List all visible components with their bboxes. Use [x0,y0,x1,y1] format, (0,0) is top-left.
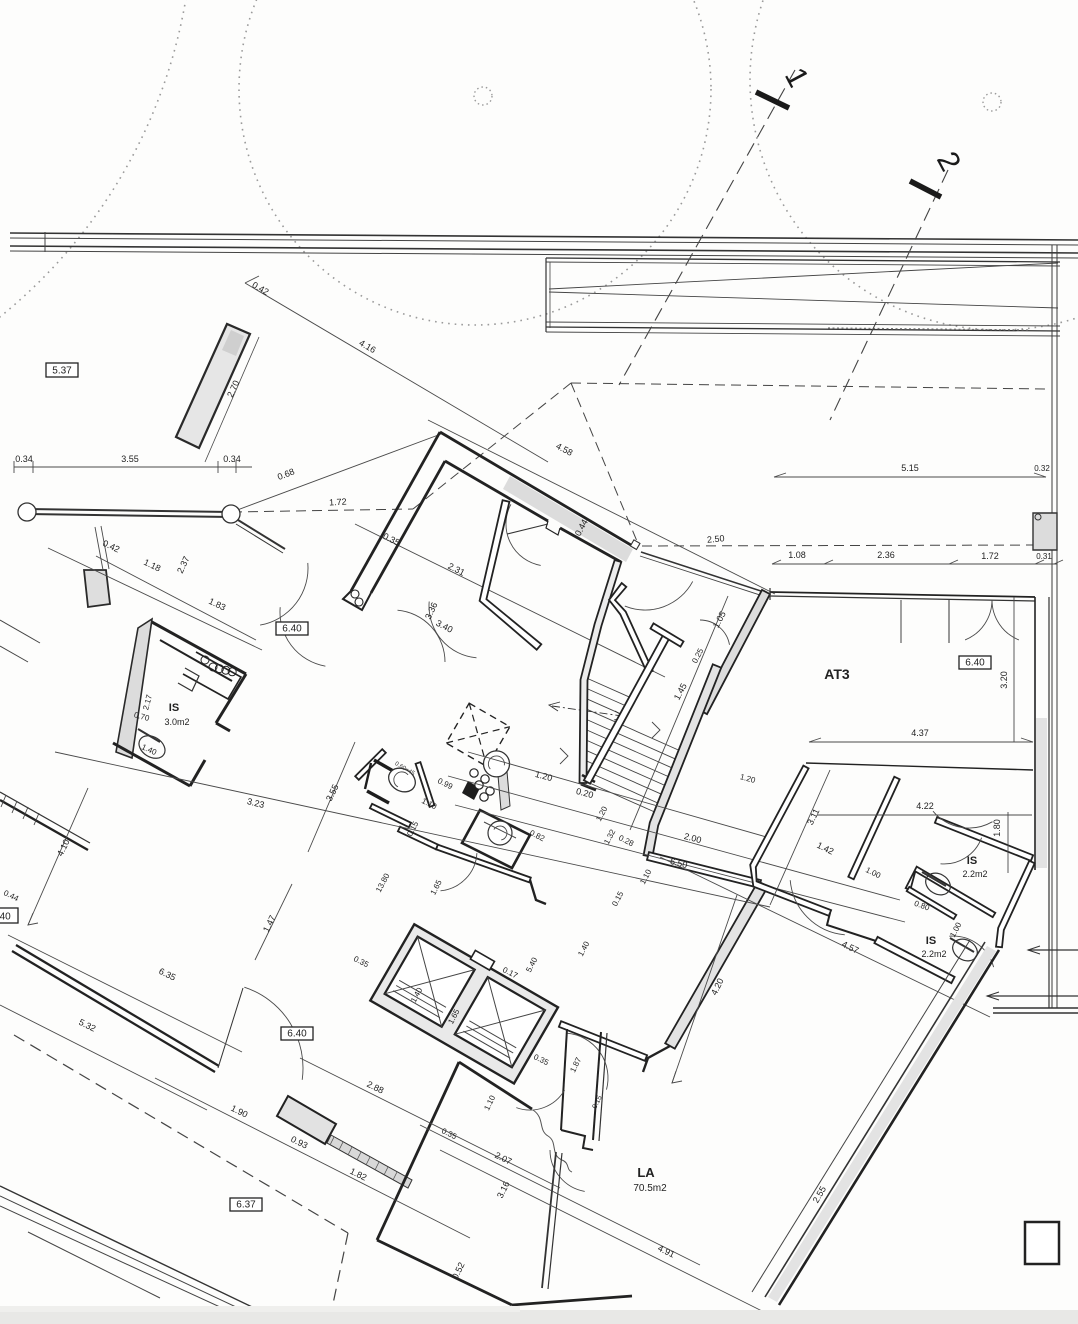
svg-text:6.40: 6.40 [287,1029,307,1040]
svg-text:3.20: 3.20 [999,671,1009,689]
svg-text:0.31: 0.31 [1036,552,1052,561]
svg-text:3.0m2: 3.0m2 [164,717,189,727]
svg-text:1.80: 1.80 [992,819,1002,837]
svg-text:5.15: 5.15 [901,463,919,473]
svg-text:2.36: 2.36 [877,550,895,560]
svg-text:6.37: 6.37 [236,1200,256,1211]
svg-text:1.72: 1.72 [981,551,999,561]
svg-text:2.50: 2.50 [707,533,725,544]
svg-text:0.32: 0.32 [1034,464,1050,473]
svg-text:LA: LA [637,1165,655,1180]
svg-text:4.37: 4.37 [911,728,929,738]
svg-text:2.2m2: 2.2m2 [962,869,987,879]
svg-text:1.08: 1.08 [788,550,806,560]
svg-text:6.40: 6.40 [0,912,11,923]
svg-text:IS: IS [967,855,977,867]
svg-text:AT3: AT3 [824,666,850,682]
svg-text:0.34: 0.34 [223,454,241,464]
svg-text:IS: IS [926,935,936,947]
svg-text:5.37: 5.37 [52,366,72,377]
svg-text:2.2m2: 2.2m2 [921,949,946,959]
svg-text:0.34: 0.34 [15,454,33,464]
svg-text:4.22: 4.22 [916,801,934,811]
svg-text:6.40: 6.40 [965,658,985,669]
svg-text:1.72: 1.72 [329,497,347,508]
svg-text:IS: IS [169,702,179,714]
svg-text:3.55: 3.55 [121,454,139,464]
svg-text:70.5m2: 70.5m2 [633,1183,667,1194]
svg-text:6.40: 6.40 [282,624,302,635]
